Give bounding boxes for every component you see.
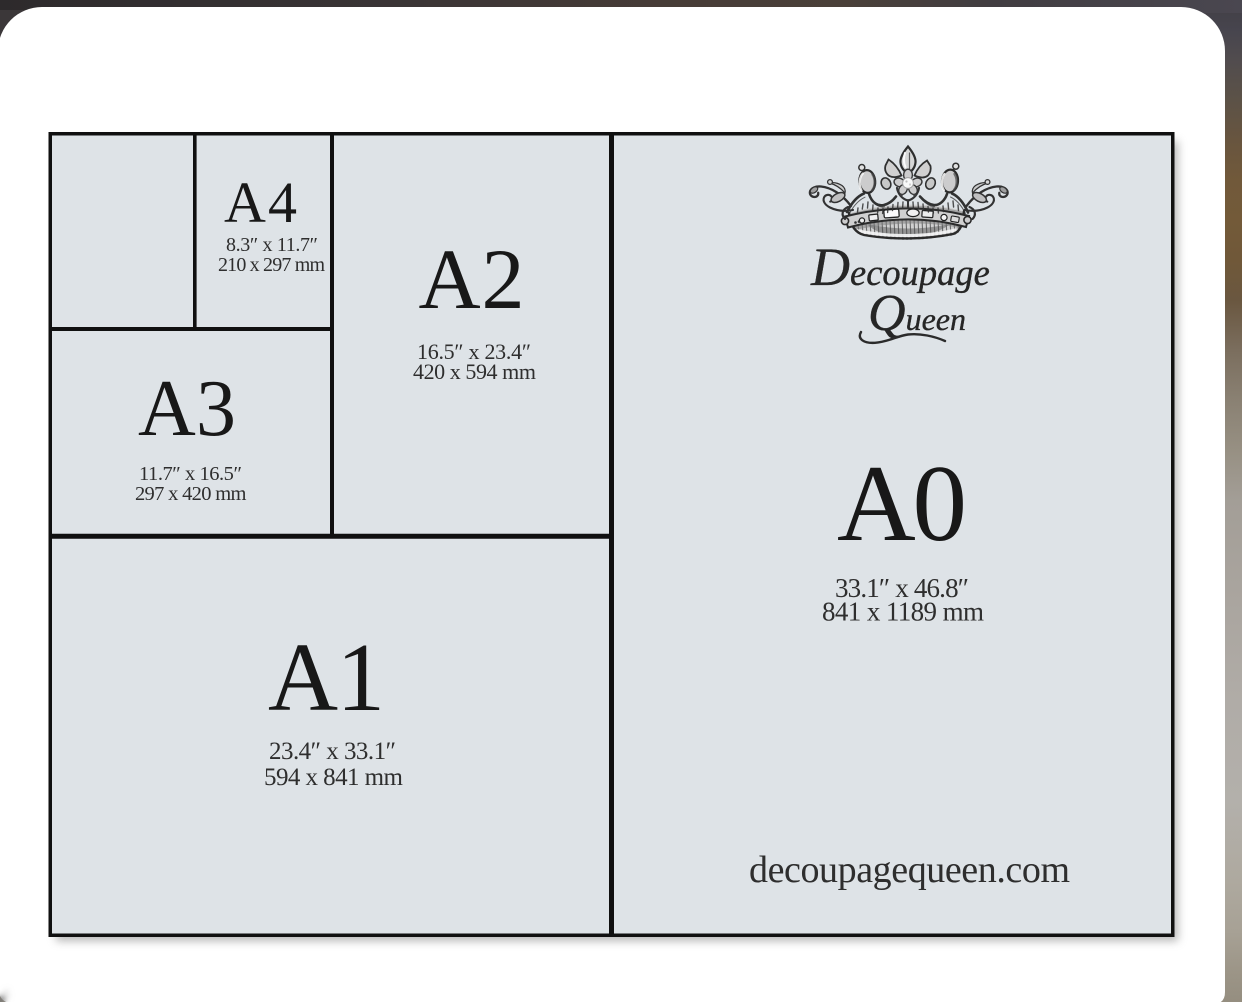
svg-text:297 x 420 mm: 297 x 420 mm — [135, 483, 247, 505]
svg-text:decoupagequeen.com: decoupagequeen.com — [749, 849, 1070, 891]
svg-text:A3: A3 — [138, 365, 236, 453]
svg-text:A1: A1 — [268, 624, 385, 731]
svg-text:841 x 1189 mm: 841 x 1189 mm — [822, 597, 984, 627]
svg-text:A2: A2 — [419, 231, 525, 327]
svg-text:A0: A0 — [837, 443, 967, 564]
svg-text:A4: A4 — [224, 170, 297, 235]
svg-text:11.7″ x 16.5″: 11.7″ x 16.5″ — [139, 463, 242, 485]
svg-text:8.3″ x 11.7″: 8.3″ x 11.7″ — [226, 234, 318, 256]
svg-text:594 x 841 mm: 594 x 841 mm — [264, 764, 404, 791]
svg-text:23.4″ x 33.1″: 23.4″ x 33.1″ — [269, 738, 396, 765]
svg-text:210 x 297 mm: 210 x 297 mm — [218, 254, 325, 276]
svg-text:420 x 594 mm: 420 x 594 mm — [413, 359, 536, 384]
